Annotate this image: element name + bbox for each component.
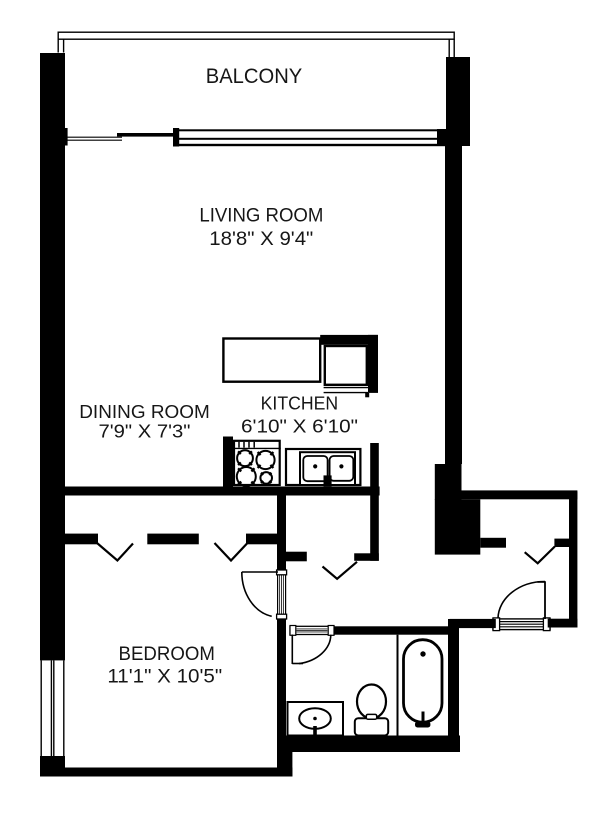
svg-text:BEDROOM: BEDROOM [119,643,215,665]
svg-text:DINING ROOM: DINING ROOM [79,402,210,422]
svg-text:18'8" X 9'4": 18'8" X 9'4" [209,229,313,250]
svg-text:LIVING ROOM: LIVING ROOM [199,206,323,227]
svg-text:KITCHEN: KITCHEN [261,392,339,413]
svg-text:6'10" X 6'10": 6'10" X 6'10" [241,415,358,436]
svg-text:7'9" X 7'3": 7'9" X 7'3" [99,422,191,442]
svg-text:11'1" X 10'5": 11'1" X 10'5" [107,667,222,688]
svg-text:BALCONY: BALCONY [206,64,303,88]
